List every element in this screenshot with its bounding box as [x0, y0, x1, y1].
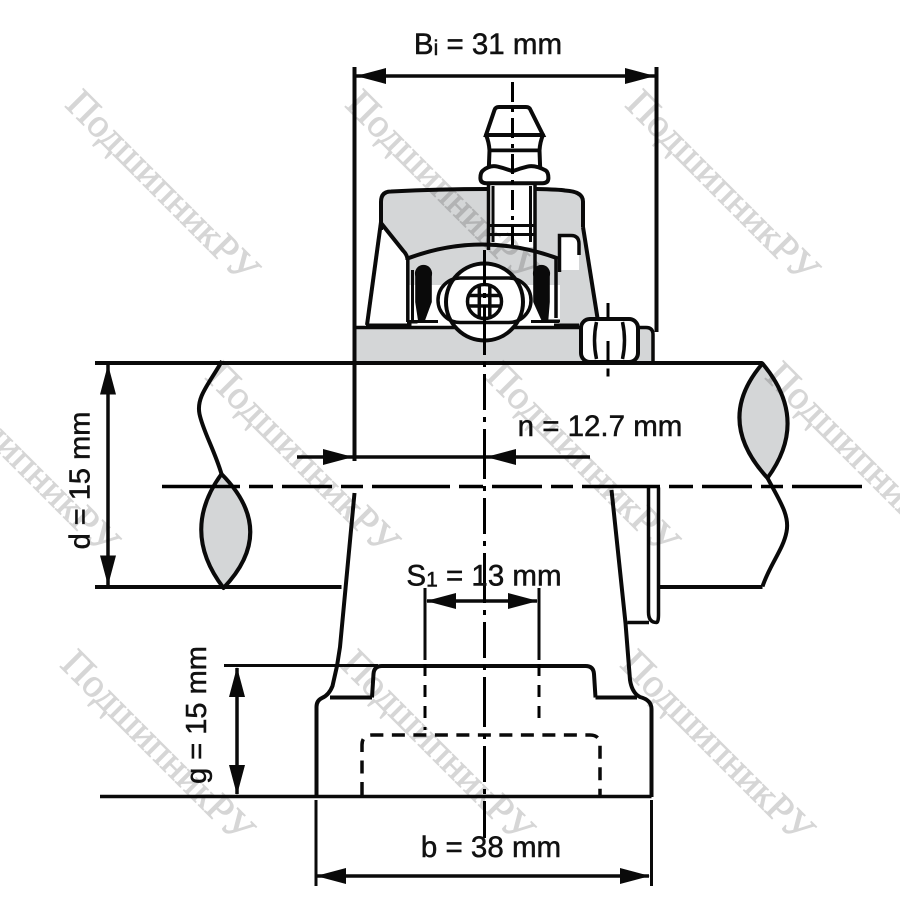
- svg-text:Bi = 31 mm: Bi = 31 mm: [414, 28, 562, 61]
- svg-text:ПодшипникРУ: ПодшипникРУ: [58, 81, 270, 293]
- svg-text:ПодшипникРУ: ПодшипникРУ: [53, 641, 265, 853]
- svg-text:ПодшипникРУ: ПодшипникРУ: [333, 641, 545, 853]
- svg-text:S1 = 13 mm: S1 = 13 mm: [406, 560, 561, 593]
- svg-text:ПодшипникРУ: ПодшипникРУ: [618, 81, 830, 293]
- svg-text:b = 38 mm: b = 38 mm: [421, 831, 561, 864]
- svg-text:ПодшипникРУ: ПодшипникРУ: [613, 641, 825, 853]
